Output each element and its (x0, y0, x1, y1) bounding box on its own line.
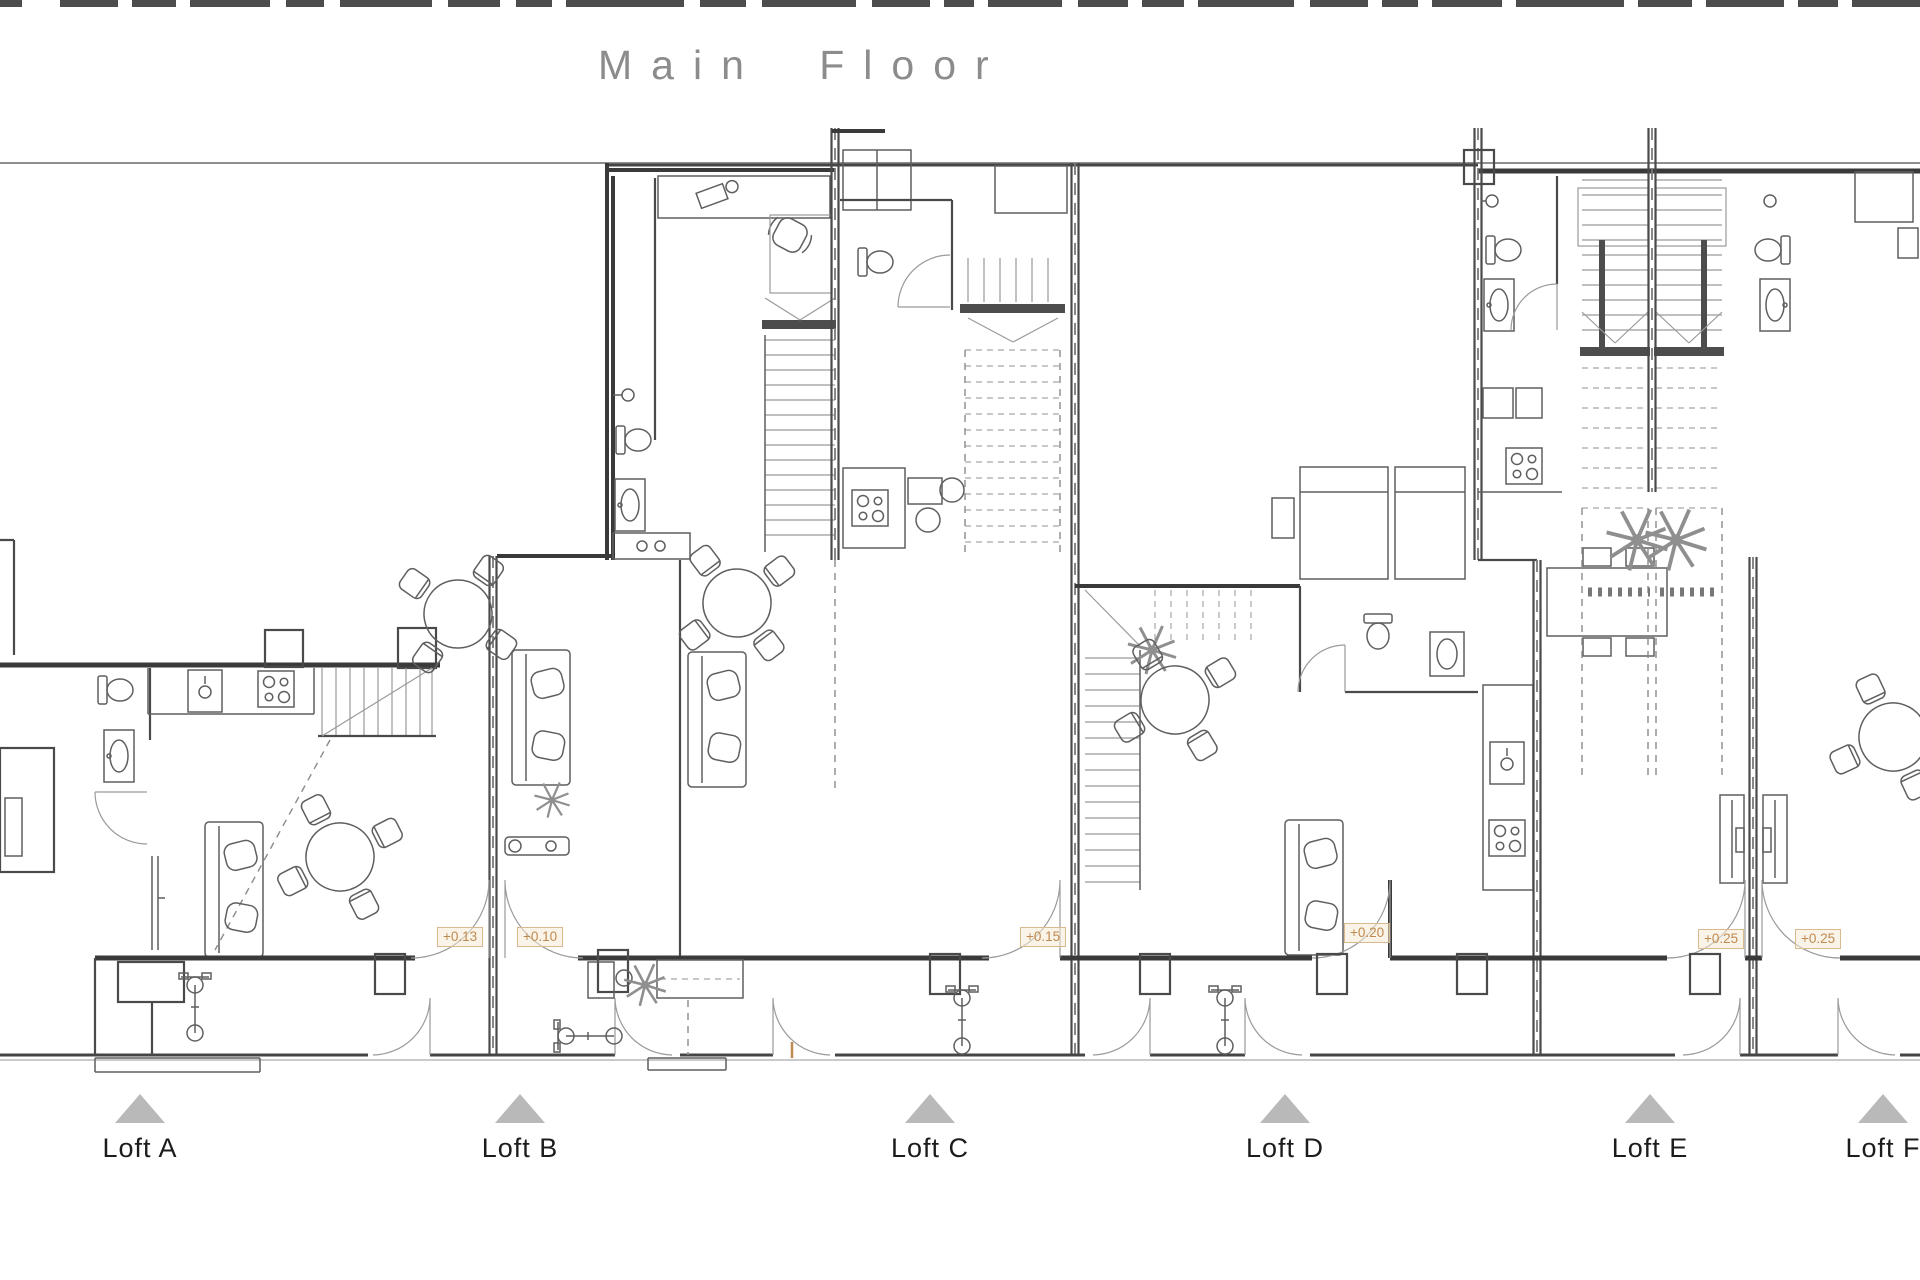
elevation-value: +0.25 (1704, 931, 1738, 946)
loft-marker-triangle (115, 1094, 165, 1123)
elevation-value: +0.10 (523, 929, 557, 944)
page-title: Main Floor (598, 42, 998, 89)
loft-label-text: Loft D (1215, 1133, 1355, 1164)
floor-plan-drawing (0, 0, 1920, 1280)
floor-plan-page: Main Floor +0.13 +0.10 +0.15 +0.20 +0.25… (0, 0, 1920, 1280)
elevation-marker-1: +0.13 (437, 927, 483, 947)
site-boundary-line (0, 163, 1920, 171)
loft-a-unit (0, 540, 440, 957)
elevation-marker-3: +0.15 (1020, 927, 1066, 947)
loft-label-f: Loft F (1813, 1094, 1920, 1164)
loft-marker-triangle (1858, 1094, 1908, 1123)
loft-c-unit (675, 150, 1067, 958)
loft-marker-triangle (905, 1094, 955, 1123)
loft-label-c: Loft C (860, 1094, 1000, 1164)
loft-label-a: Loft A (70, 1094, 210, 1164)
elevation-value: +0.13 (443, 929, 477, 944)
loft-label-text: Loft F (1813, 1133, 1920, 1164)
loft-marker-triangle (1260, 1094, 1310, 1123)
loft-marker-triangle (1625, 1094, 1675, 1123)
elevation-value: +0.20 (1350, 925, 1384, 940)
elevation-marker-4: +0.20 (1344, 923, 1390, 943)
loft-label-text: Loft A (70, 1133, 210, 1164)
loft-f-unit (1755, 172, 1920, 883)
elevation-marker-5: +0.25 (1698, 929, 1744, 949)
loft-b-unit (394, 163, 836, 855)
elevation-value: +0.15 (1026, 929, 1060, 944)
loft-label-text: Loft E (1580, 1133, 1720, 1164)
party-wall-c-d (1072, 163, 1079, 1055)
loft-label-e: Loft E (1580, 1094, 1720, 1164)
top-edge-dashes (0, 0, 1920, 7)
party-wall-b-c (832, 128, 886, 790)
elevation-value: +0.25 (1801, 931, 1835, 946)
party-wall-d-e (1464, 128, 1541, 1055)
loft-marker-triangle (495, 1094, 545, 1123)
elevation-marker-2: +0.10 (517, 927, 563, 947)
elevation-marker-6: +0.25 (1795, 929, 1841, 949)
loft-d-unit (1075, 467, 1533, 958)
walkway-band (0, 880, 1920, 1072)
loft-label-b: Loft B (450, 1094, 590, 1164)
loft-label-d: Loft D (1215, 1094, 1355, 1164)
loft-label-text: Loft B (450, 1133, 590, 1164)
loft-label-text: Loft C (860, 1133, 1000, 1164)
